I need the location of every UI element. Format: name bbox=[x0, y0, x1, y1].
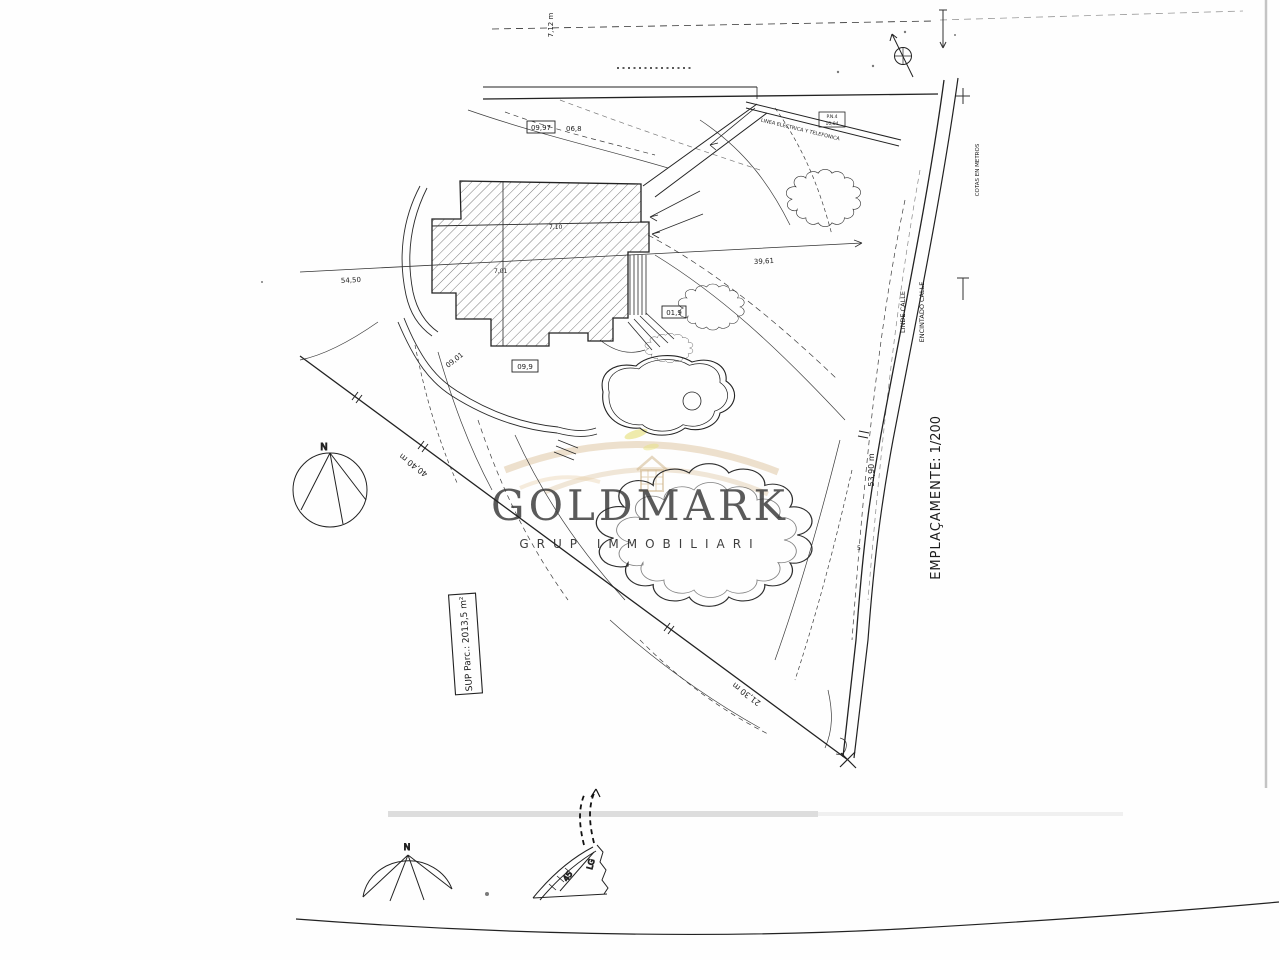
building-elev-b: 7,01 bbox=[494, 268, 508, 275]
units-note: COTAS EN METROS bbox=[975, 143, 981, 196]
cross-dim-right: 39,61 bbox=[754, 257, 774, 266]
north-compass: N bbox=[293, 442, 367, 527]
street-label-encintado: ENCINTADO CALLE bbox=[918, 282, 926, 343]
watermark: GOLDMARK GRUP IMMOBILIARI bbox=[491, 426, 789, 551]
area-box: SUP Parc.: 2013,5 m² bbox=[449, 593, 483, 695]
pool-inner-line bbox=[608, 360, 727, 432]
pool-circle-detail bbox=[683, 392, 701, 410]
driveway-arrow bbox=[710, 108, 755, 150]
fan-compass: N bbox=[363, 843, 452, 901]
sail-sketch: 45 LG bbox=[533, 845, 608, 900]
svg-text:SUP Parc.: 2013,5 m²: SUP Parc.: 2013,5 m² bbox=[459, 596, 476, 692]
stairs bbox=[628, 255, 674, 350]
driveway bbox=[643, 104, 767, 197]
scan-band bbox=[388, 811, 818, 817]
north-label-bottom: N bbox=[404, 843, 411, 853]
corner-x-mark bbox=[840, 752, 856, 768]
bottom-sheet: N 45 LG bbox=[296, 789, 1279, 934]
parcel-boundary bbox=[300, 68, 944, 768]
scan-artifacts bbox=[261, 0, 1266, 896]
pool-outline bbox=[602, 356, 734, 436]
dim-top: 7,12 m bbox=[547, 13, 555, 38]
site-plan-scan: GOLDMARK GRUP IMMOBILIARI bbox=[0, 0, 1280, 960]
elevation-box-lower: 09,9 bbox=[512, 360, 538, 372]
survey-marks bbox=[939, 10, 970, 300]
building bbox=[432, 181, 703, 350]
boundary-southwest bbox=[300, 356, 848, 760]
station-number: 5 bbox=[857, 545, 861, 552]
boundary-top bbox=[483, 94, 938, 99]
cross-dim-left: 54,50 bbox=[341, 276, 361, 285]
elevation-top-plain: 06,8 bbox=[566, 125, 582, 133]
scan-speckles bbox=[261, 31, 956, 896]
svg-text:09,9: 09,9 bbox=[517, 363, 533, 371]
north-label: N bbox=[320, 442, 327, 453]
tree-blob-ne bbox=[786, 169, 860, 226]
scale-label: E: 1/200 bbox=[929, 416, 944, 470]
mini-compass-icon bbox=[890, 34, 913, 77]
dim-street-side: 53,90 m bbox=[867, 453, 876, 486]
elevation-box-top: 09,97 bbox=[527, 121, 555, 133]
street-label-linde: LINDE CALLE bbox=[899, 291, 907, 333]
slope-elevation: 09,01 bbox=[444, 351, 465, 370]
scanned-site-plan-page: GOLDMARK GRUP IMMOBILIARI bbox=[0, 0, 1280, 960]
utility-box-label: P.N.4 10,04 bbox=[819, 112, 845, 127]
svg-text:P.N.4: P.N.4 bbox=[826, 114, 837, 120]
road bbox=[643, 78, 958, 758]
dim-southwest: 40,40 m bbox=[397, 451, 429, 478]
svg-text:09,97: 09,97 bbox=[531, 124, 551, 132]
ground-curve bbox=[296, 902, 1279, 934]
sail-label-lg: LG bbox=[585, 858, 596, 871]
building-dim-arrows bbox=[650, 191, 703, 238]
tree-blob-mid bbox=[678, 284, 744, 330]
survey-dashed-line bbox=[492, 21, 934, 29]
building-elev-a: 7,10 bbox=[549, 224, 563, 231]
pool bbox=[602, 356, 734, 436]
svg-text:01,9: 01,9 bbox=[666, 309, 682, 317]
emplacament-label: EMPLAÇAMENT bbox=[929, 470, 944, 580]
scan-band-light bbox=[818, 812, 1123, 816]
brand-name: GOLDMARK bbox=[491, 481, 789, 530]
svg-text:10,04: 10,04 bbox=[826, 121, 839, 127]
